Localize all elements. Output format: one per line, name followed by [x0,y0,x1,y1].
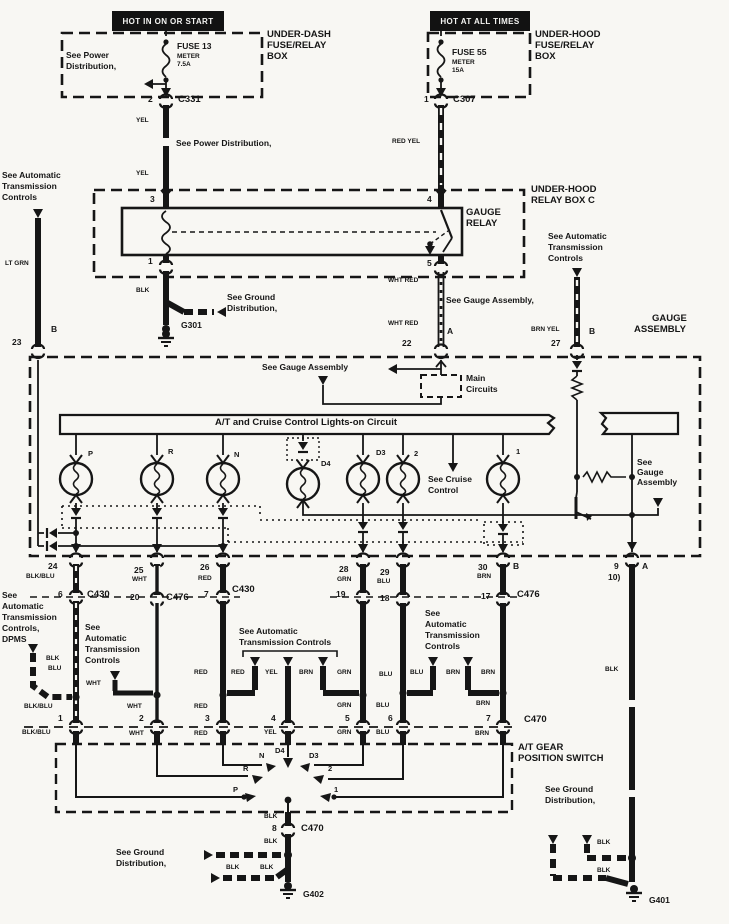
note-auto-tl: Transmission [2,182,57,191]
wire-label: BLK [597,840,610,847]
gauge-assembly-label: ASSEMBLY [634,325,686,335]
wire-label: GRN [337,730,351,737]
pin-label: 7 [486,714,491,723]
pin-label: 5 [427,259,432,268]
relay-coil [162,211,170,254]
fuse-55-rating: 15A [452,68,464,75]
note-auto-b2: Transmission Controls [239,638,331,647]
pin-label: A [447,327,453,336]
note-auto-tr: See Automatic [548,232,607,241]
position-label: R [243,765,248,773]
lamp-label: 1 [516,448,520,456]
note-auto-b3: Controls [425,642,460,651]
note-ground-bl: See Ground [116,848,164,857]
under-dash-label: UNDER-DASH [267,30,331,40]
wire-label: BLK [264,839,277,846]
note-cruise: Control [428,486,458,495]
connector-label: C331 [178,95,201,105]
under-hood-fuse-box [428,31,530,108]
wire-label: BLK/BLU [24,704,53,711]
wire-label: RED [194,670,208,677]
position-label: 2 [328,765,332,773]
wire-label: RED [194,731,208,738]
relay-box-label: RELAY BOX C [531,196,595,206]
fuse-55-name: FUSE 55 [452,48,487,57]
g402-branch [204,812,296,898]
note-auto-tl: See Automatic [2,171,61,180]
note-auto-b1: See [85,623,100,632]
gear-position-switch [56,731,512,812]
wire-label: BLK [46,656,59,663]
pin-label: B [513,562,519,571]
pin-label: 22 [402,339,411,348]
wht-red-wire [435,272,447,358]
note-auto-b1: Controls [85,656,120,665]
connector-label: C470 [524,715,547,725]
position-label: D4 [275,747,285,755]
wire-label: BLU [379,672,392,679]
yel-wire [161,105,171,190]
pin-label: 6 [58,590,63,599]
wire-label: BRN [299,670,313,677]
wire-label: RED [231,670,245,677]
g301-ground-symbol [158,330,174,346]
wire-label: BRN [476,701,490,708]
note-ground-1: See Ground [227,293,275,302]
pin-label: 18 [380,594,389,603]
under-hood-relay-box [94,188,524,277]
position-label: 1 [334,786,338,794]
note-auto-tr: Controls [548,254,583,263]
wire-label: WHT [129,731,144,738]
wire-label: WHT [132,577,147,584]
main-circuits-label: Circuits [466,385,498,394]
connector-label: C476 [517,590,540,600]
wire-label: BLU [410,670,423,677]
note-dpms: Transmission [2,613,57,622]
wire-label: GRN [337,703,351,710]
note-auto-b3: Automatic [425,620,467,629]
note-dpms: Automatic [2,602,44,611]
resistor-vertical [572,376,582,400]
connector-label: C307 [453,95,476,105]
wire-label: RED [198,576,212,583]
wire-label: BLK [605,667,618,674]
connector-label: C430 [87,590,110,600]
position-label: P [233,786,238,794]
connector-label: C430 [232,585,255,595]
ground-label: G401 [649,896,670,905]
hot-banner-left: HOT IN ON OR START [112,11,224,31]
lamp-label: D3 [376,449,386,457]
pin-label: 4 [271,714,276,723]
note-power-2: See Power Distribution, [176,139,271,148]
pin-label: 7 [204,590,209,599]
wire-label: BLK [264,814,277,821]
wire-label: RED YEL [392,139,420,146]
note-gauge-2: See Gauge Assembly [262,363,348,372]
note-gauge-1: See Gauge Assembly, [446,296,534,305]
pin-label: B [51,325,57,334]
wire-label: BLK [597,868,610,875]
position-label: N [259,752,264,760]
note-ground-bl: Distribution, [116,859,166,868]
wire-label: BLK/BLU [26,574,55,581]
fuse-55-symbol [438,44,445,77]
pin-label: B [589,327,595,336]
pin-label: 29 [380,568,389,577]
wire-label: BLU [48,666,61,673]
g401-branch [548,564,642,901]
lamp-label: P [88,450,93,458]
diode-network [38,360,523,553]
wire-label: BLK [226,865,239,872]
wire-label: WHT [86,681,101,688]
pin-label: 1 [58,714,63,723]
brn-yel-wire [571,268,583,358]
g401-ground-symbol [626,885,642,901]
wire-label: WHT RED [388,278,418,285]
wire-label: BLK [136,288,149,295]
under-hood-label: BOX [535,52,556,62]
pin-label: 28 [339,565,348,574]
hot-banner-right: HOT AT ALL TIMES [430,11,530,31]
wire-label: LT GRN [5,261,29,268]
wire-label: BRN [446,670,460,677]
fuse-55-rating: METER [452,60,475,67]
pin-label: 1 [424,95,429,104]
lamp-label: R [168,448,173,456]
pin-label: 4 [427,195,432,204]
note-gauge-3: Gauge [637,468,663,477]
wire-label: YEL [136,171,149,178]
note-auto-tl: Controls [2,193,37,202]
ground-label: G301 [181,321,202,330]
note-dpms: See [2,591,17,600]
gauge-relay-label: RELAY [466,219,497,229]
pin-label: 3 [205,714,210,723]
wire-label: BLU [377,579,390,586]
pin-label: 23 [12,338,21,347]
wire-label: BLK [260,865,273,872]
lamp-label: 2 [414,450,418,458]
wire-label: BLU [376,730,389,737]
note-power-1: See Power [66,51,109,60]
pin-label: 17 [481,592,490,601]
pin-label: 26 [200,563,209,572]
pin-label: 30 [478,563,487,572]
main-circuits-label: Main [466,374,485,383]
pin-label: 9 [614,562,619,571]
pin-label: 5 [345,714,350,723]
note-auto-b3: Transmission [425,631,480,640]
wire-label: YEL [264,730,277,737]
gear-switch-label: A/T GEAR [518,743,563,753]
wire-label: YEL [136,118,149,125]
pin-label: 1 [148,257,153,266]
wiring-diagram-page: HOT IN ON OR START HOT AT ALL TIMES UNDE… [0,0,729,924]
wire-label: BRN [477,574,491,581]
cruise-arrow [448,463,458,472]
under-hood-label: FUSE/RELAY [535,41,594,51]
lamp-label: N [234,451,239,459]
note-power-1: Distribution, [66,62,116,71]
note-gauge-3: See [637,458,652,467]
note-auto-b2: See Automatic [239,627,298,636]
pin-label: 8 [272,824,277,833]
relay-contact [441,210,452,238]
under-dash-label: BOX [267,52,288,62]
fuse-13-rating: 7.5A [177,62,191,69]
pin-label: 3 [150,195,155,204]
fuse-13-symbol [163,44,170,77]
pin-label: 27 [551,339,560,348]
wiring-svg [0,0,729,924]
note-ground-1: Distribution, [227,304,277,313]
under-dash-label: FUSE/RELAY [267,41,326,51]
note-ground-br: Distribution, [545,796,595,805]
note-dpms: DPMS [2,635,27,644]
wire-label: WHT RED [388,321,418,328]
wire-label: GRN [337,577,351,584]
under-hood-label: UNDER-HOOD [535,30,600,40]
note-cruise: See Cruise [428,475,472,484]
lamp-label: D4 [321,460,331,468]
ground-label: G402 [303,890,324,899]
connector-label: C470 [301,824,324,834]
pin-label: 2 [148,95,153,104]
wire-label: BLU [376,703,389,710]
fuse-13-name: FUSE 13 [177,42,212,51]
pin-label: 25 [134,566,143,575]
blk-wire-g301 [158,271,226,346]
note-auto-b1: Automatic [85,634,127,643]
pin-label: 10) [608,573,620,582]
lt-grn-wire [32,209,44,358]
gauge-relay-label: GAUGE [466,208,501,218]
note-dpms: Controls, [2,624,39,633]
pin-label: 19 [336,590,345,599]
lamp-circuits [60,434,519,508]
lights-on-bar-label: A/T and Cruise Control Lights-on Circuit [60,418,552,428]
gear-switch-label: POSITION SWITCH [518,754,604,764]
pin-label: 20 [130,593,139,602]
wire-label: BRN [481,670,495,677]
pin-label: 6 [388,714,393,723]
pin-label: 2 [139,714,144,723]
note-auto-b3: See [425,609,440,618]
pin-label: A [642,562,648,571]
resistor-horizontal [583,472,626,482]
gauge-assembly-label: GAUGE [652,314,687,324]
relay-box-label: UNDER-HOOD [531,185,596,195]
connector-label: C476 [166,593,189,603]
position-label: D3 [309,752,319,760]
wire-label: WHT [127,704,142,711]
note-ground-br: See Ground [545,785,593,794]
pin-label: 24 [48,562,57,571]
wire-label: BRN YEL [531,327,559,334]
wire-label: BRN [475,731,489,738]
g402-ground-symbol [280,882,296,898]
note-auto-b1: Transmission [85,645,140,654]
wire-label: GRN [337,670,351,677]
fuse-13-rating: METER [177,54,200,61]
wire-label: RED [194,704,208,711]
wire-label: YEL [265,670,278,677]
note-gauge-3: Assembly [637,478,677,487]
note-auto-tr: Transmission [548,243,603,252]
wire-label: BLK/BLU [22,730,51,737]
